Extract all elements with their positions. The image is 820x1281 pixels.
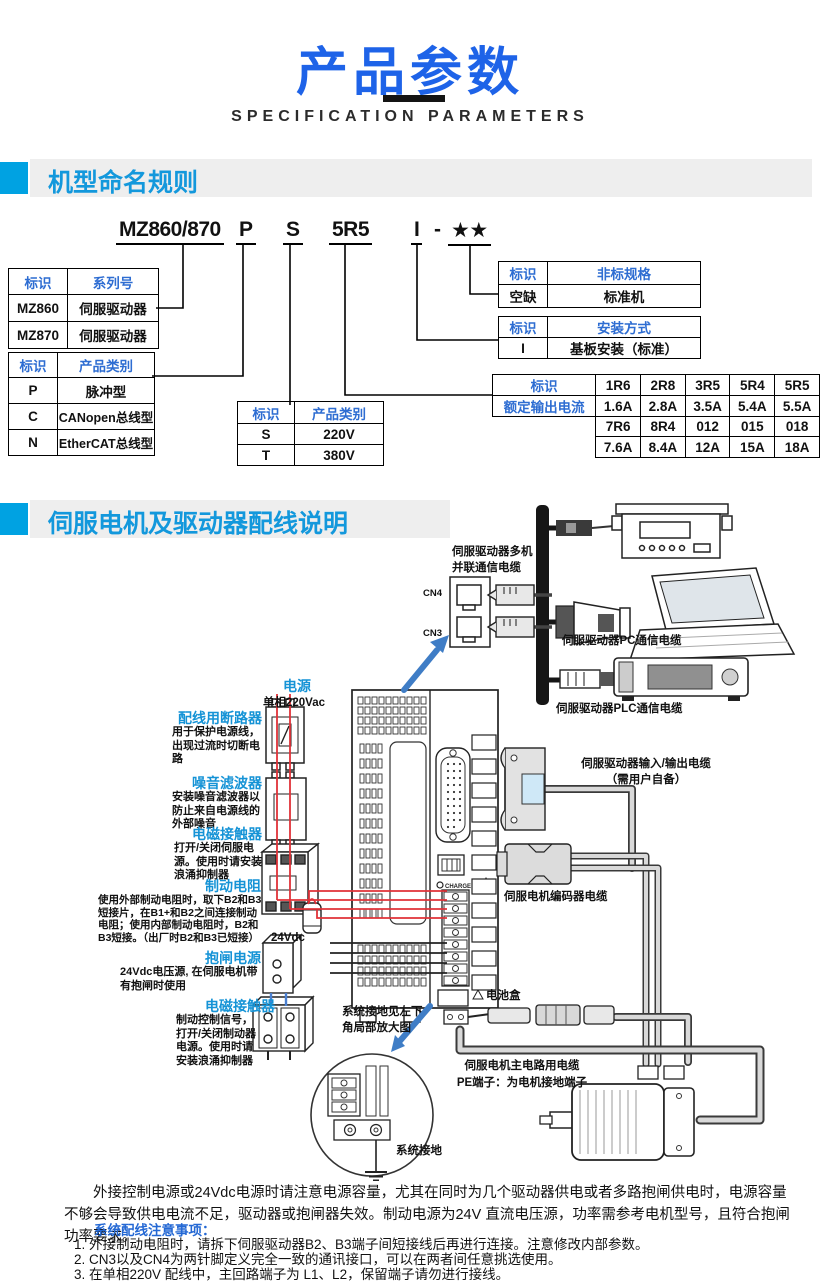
spec-page: 产品参数 SPECIFICATION PARAMETERS 机型命名规则 MZ8… — [0, 0, 820, 1281]
system-ground-label: 系统接地 — [396, 1142, 442, 1158]
encoder-connector-figure — [497, 844, 571, 884]
contactor2-desc: 制动控制信号，打开/关闭制动器电源。使用时请安装浪涌抑制器 — [176, 1014, 262, 1068]
io-connector-figure — [501, 748, 545, 1181]
24vdc-label: 24Vdc — [271, 932, 305, 944]
handheld-device-figure — [612, 504, 732, 558]
brake-resistor-desc: 使用外部制动电阻时，取下B2和B3短接片，在B1+和B2之间连接制动电阻；使用内… — [98, 894, 262, 944]
cn3-label: CN3 — [423, 628, 442, 639]
plc-figure — [560, 658, 748, 701]
wiring-note-3: 3. 在单相220V 配线中，主回路端子为 L1、L2，保留端子请勿进行接线。 — [74, 1263, 509, 1281]
section1-square-icon — [0, 162, 28, 194]
brake-power-title: 抱闸电源 — [205, 948, 261, 968]
naming-connector-lines — [0, 200, 820, 480]
brake-resistor-figure — [303, 899, 321, 933]
brake-power-desc: 24Vdc电压源, 在伺服电机带有抱闸时使用 — [120, 966, 260, 993]
title-underline — [383, 95, 445, 102]
wiring-illustration: CHARGE — [0, 498, 820, 1181]
power-voltage-label: 单相220Vac — [263, 694, 325, 710]
brake-resistor-title: 制动电阻 — [205, 876, 261, 896]
page-title: 产品参数 — [0, 30, 820, 105]
noise-filter-figure — [266, 772, 306, 846]
main-circuit-cable-label: 伺服电机主电路用电缆 PE端子：为电机接地端子 — [452, 1058, 592, 1092]
power-title: 电源 — [283, 676, 311, 696]
contactor2-title: 电磁接触器 — [205, 996, 275, 1016]
cn-port-block — [450, 577, 490, 647]
plc-cable-label: 伺服驱动器PLC通信电缆 — [556, 700, 683, 716]
pc-cable-label: 伺服驱动器PC通信电缆 — [562, 632, 681, 648]
page-subtitle: SPECIFICATION PARAMETERS — [0, 108, 820, 126]
breaker-desc: 用于保护电源线，出现过流时切断电路 — [172, 726, 262, 767]
battery-box-label: 电池盒 — [486, 987, 521, 1003]
ground-detail-circle — [311, 1054, 433, 1181]
filter-title: 噪音滤波器 — [192, 773, 262, 793]
cn4-label: CN4 — [423, 588, 442, 599]
ground-note-label: 系统接地见左下 角局部放大图 — [342, 1004, 423, 1036]
io-cable-label: 伺服驱动器输入/输出电缆 （需用户自备） — [575, 756, 717, 788]
contactor-title: 电磁接触器 — [192, 824, 262, 844]
section1-title: 机型命名规则 — [48, 163, 198, 199]
multi-drive-cable-label: 伺服驱动器多机 并联通信电缆 — [452, 544, 533, 576]
svg-text:CHARGE: CHARGE — [445, 884, 471, 890]
breaker-title: 配线用断路器 — [178, 708, 262, 728]
servo-drive-figure: CHARGE — [352, 690, 498, 1024]
battery-box-figure — [468, 1005, 614, 1025]
encoder-cable-label: 伺服电机编码器电缆 — [504, 888, 608, 904]
